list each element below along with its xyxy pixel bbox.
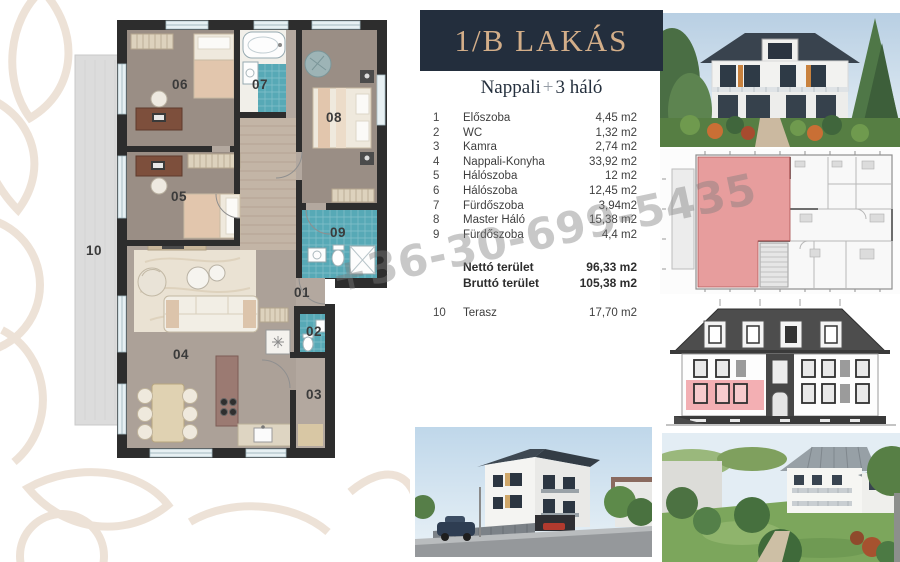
table-row: 5Hálószoba12 m2 (427, 169, 637, 184)
subtitle-left: Nappali (481, 77, 541, 98)
table-row: 6Hálószoba12,45 m2 (427, 184, 637, 199)
tree-icon (666, 487, 698, 519)
apartment-datasheet-page: 06 07 08 05 09 01 02 03 04 10 1/B LAKÁS … (0, 0, 900, 562)
room-label-05: 05 (171, 189, 187, 204)
chair-icon (151, 178, 167, 194)
table-row: 3Kamra2,74 m2 (427, 140, 637, 155)
kitchen-sink-icon (254, 428, 272, 442)
closet-icon (260, 308, 288, 322)
plus-sign: + (541, 77, 556, 98)
corridor-floor (240, 118, 296, 250)
room-label-08: 08 (326, 110, 342, 125)
sink-icon (308, 248, 326, 262)
desk-icon (136, 108, 182, 130)
room-label-09: 09 (330, 225, 346, 240)
storey-plan-overview (660, 149, 900, 294)
room-area-table: 1Előszoba4,45 m2 2WC1,32 m2 3Kamra2,74 m… (427, 111, 637, 242)
floor-plan: 06 07 08 05 09 01 02 03 04 10 (0, 0, 410, 562)
stairwell (760, 243, 788, 287)
room-label-02: 02 (306, 324, 322, 339)
desk-icon (136, 156, 182, 176)
header-box: 1/B LAKÁS (420, 10, 663, 71)
table-row: 2WC1,32 m2 (427, 126, 637, 141)
table-row: 4Nappali-Konyha33,92 m2 (427, 155, 637, 170)
apartment-building (477, 449, 600, 532)
overview-terrace (672, 169, 694, 269)
net-area-row: Nettó terület96,33 m2 (427, 260, 637, 276)
area-totals: Nettó terület96,33 m2 Bruttó terület105,… (427, 260, 637, 291)
photo-garden-view (662, 433, 900, 562)
pantry-mat (298, 424, 323, 446)
sofa-icon (164, 296, 258, 332)
armchair-icon (138, 268, 166, 296)
tree-icon (734, 497, 770, 533)
subtitle-right: 3 háló (555, 77, 602, 98)
coffee-table-icon (187, 267, 209, 289)
photo-house-front (660, 13, 900, 147)
table-row: 7Fürdőszoba3,94m2 (427, 199, 637, 214)
gross-area-row: Bruttó terület105,38 m2 (427, 276, 637, 292)
room-label-06: 06 (172, 77, 188, 92)
room-label-07: 07 (252, 77, 268, 92)
table-row: 1Előszoba4,45 m2 (427, 111, 637, 126)
bed-icon (194, 34, 234, 98)
coffee-table-icon (209, 265, 225, 281)
bed-icon (184, 194, 240, 238)
table-row: 8Master Háló15,38 m2 (427, 213, 637, 228)
toilet-icon (332, 245, 344, 266)
entry-door-opening (325, 279, 335, 304)
terrace-area-row: 10Terasz17,70 m2 (427, 306, 637, 321)
photo-street-view (415, 427, 652, 557)
chair-icon (151, 91, 167, 107)
room-label-04: 04 (173, 347, 189, 362)
table-row: 9Fürdőszoba4,4 m2 (427, 228, 637, 243)
page-title: 1/B LAKÁS (455, 23, 629, 59)
room-label-01: 01 (294, 285, 310, 300)
subtitle: Nappali+3 háló (420, 77, 663, 99)
elevation-drawing (660, 296, 900, 432)
wardrobe-icon (188, 154, 240, 168)
dining-table-icon (138, 384, 198, 442)
room-label-03: 03 (306, 387, 322, 402)
room-label-10: 10 (86, 243, 102, 258)
